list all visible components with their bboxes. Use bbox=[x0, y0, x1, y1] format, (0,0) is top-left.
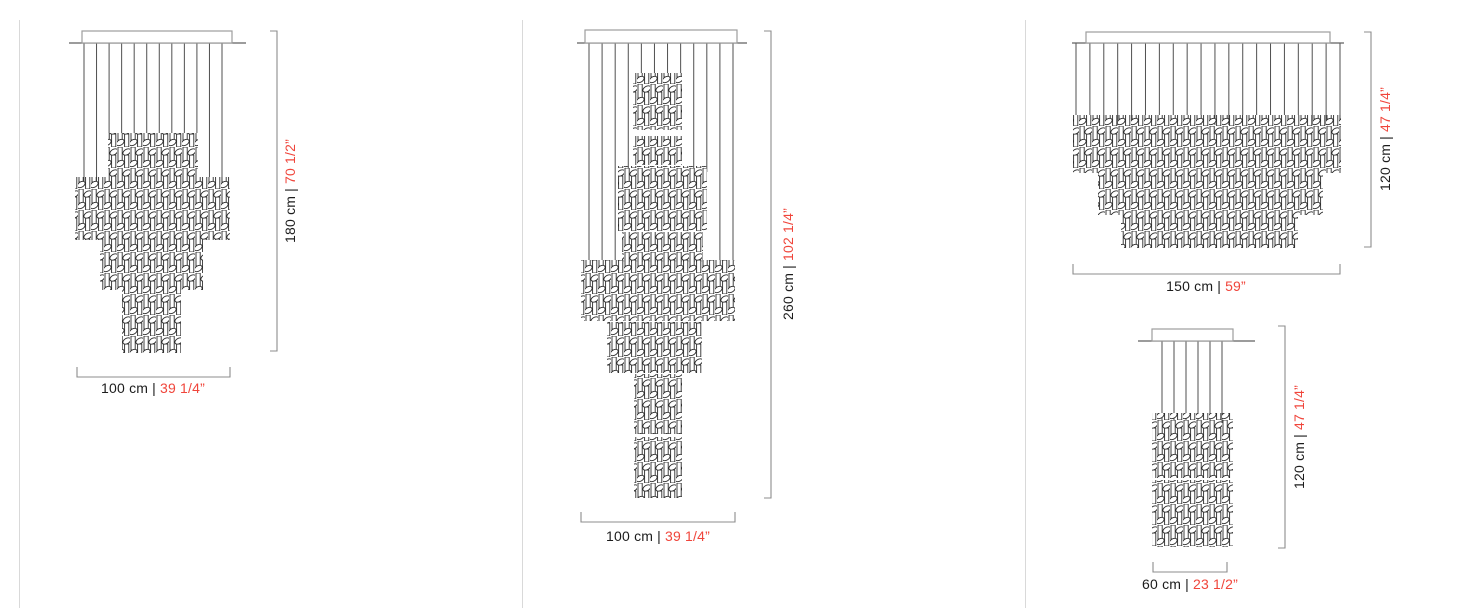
height-label-cm: 260 cm bbox=[780, 273, 796, 320]
diagram-chandelier-60x120: 60 cm|23 1/2” 120 cm|47 1/4” bbox=[1138, 326, 1307, 592]
height-dimension-label: 120 cm|47 1/4” bbox=[1291, 385, 1307, 489]
chandelier-drawing bbox=[69, 31, 277, 377]
diagram-chandelier-100x180: 100 cm|39 1/4” 180 cm|70 1/2” bbox=[69, 31, 298, 396]
width-label-cm: 150 cm bbox=[1166, 278, 1213, 294]
dimension-separator: | bbox=[282, 188, 298, 192]
chandelier-drawing bbox=[1138, 326, 1285, 572]
width-label-inches: 59” bbox=[1225, 278, 1246, 294]
height-dimension-bracket bbox=[1364, 32, 1371, 247]
dimension-separator: | bbox=[1291, 434, 1307, 438]
crystal-cluster-tier bbox=[122, 290, 181, 353]
crystal-cluster-tier bbox=[100, 240, 203, 290]
width-label-cm: 100 cm bbox=[606, 528, 653, 544]
dimension-separator: | bbox=[657, 528, 661, 544]
width-dimension-bracket bbox=[1073, 264, 1340, 274]
width-dimension-bracket bbox=[581, 512, 735, 522]
ceiling-canopy bbox=[1086, 32, 1330, 43]
dimension-separator: | bbox=[1217, 278, 1221, 294]
crystal-cluster-tier bbox=[108, 133, 198, 177]
height-dimension-label: 260 cm|102 1/4” bbox=[780, 208, 796, 320]
width-label-cm: 60 cm bbox=[1142, 576, 1181, 592]
crystal-cluster-tier bbox=[1073, 115, 1341, 173]
ceiling-canopy bbox=[585, 30, 737, 43]
crystal-cluster-tier bbox=[634, 437, 682, 498]
width-label-cm: 100 cm bbox=[101, 380, 148, 396]
chandelier-drawing bbox=[577, 30, 771, 522]
width-label-inches: 23 1/2” bbox=[1193, 576, 1238, 592]
height-label-cm: 120 cm bbox=[1377, 144, 1393, 191]
height-label-cm: 180 cm bbox=[282, 196, 298, 243]
crystal-cluster-tier bbox=[1098, 173, 1323, 215]
height-dimension-label: 120 cm|47 1/4” bbox=[1377, 87, 1393, 191]
crystal-cluster-tier bbox=[1152, 480, 1233, 547]
width-dimension-label: 60 cm|23 1/2” bbox=[1142, 576, 1238, 592]
height-dimension-bracket bbox=[270, 31, 277, 351]
dimension-separator: | bbox=[1377, 136, 1393, 140]
ceiling-canopy bbox=[1152, 329, 1233, 341]
width-dimension-bracket bbox=[1153, 562, 1227, 572]
crystal-cluster-tier bbox=[581, 260, 735, 321]
diagram-chandelier-150x120: 150 cm|59” 120 cm|47 1/4” bbox=[1072, 32, 1393, 294]
diagram-chandelier-100x260: 100 cm|39 1/4” 260 cm|102 1/4” bbox=[577, 30, 796, 544]
width-dimension-label: 150 cm|59” bbox=[1166, 278, 1246, 294]
ceiling-canopy bbox=[82, 31, 232, 43]
height-dimension-bracket bbox=[764, 31, 771, 498]
width-dimension-label: 100 cm|39 1/4” bbox=[101, 380, 205, 396]
crystal-cluster-tier bbox=[634, 374, 682, 434]
crystal-cluster-tier bbox=[618, 166, 707, 231]
crystal-cluster-tier bbox=[607, 322, 702, 373]
height-label-inches: 102 1/4” bbox=[780, 208, 796, 261]
dimension-separator: | bbox=[780, 265, 796, 269]
crystal-cluster-tier bbox=[622, 232, 703, 262]
height-label-inches: 47 1/4” bbox=[1291, 385, 1307, 430]
crystal-cluster-tier bbox=[1152, 413, 1233, 478]
height-dimension-bracket bbox=[1278, 326, 1285, 548]
width-label-inches: 39 1/4” bbox=[160, 380, 205, 396]
width-dimension-bracket bbox=[77, 367, 230, 377]
crystal-cluster-tier bbox=[75, 177, 230, 240]
width-dimension-label: 100 cm|39 1/4” bbox=[606, 528, 710, 544]
width-label-inches: 39 1/4” bbox=[665, 528, 710, 544]
crystal-cluster-tier bbox=[633, 73, 682, 130]
dimension-separator: | bbox=[152, 380, 156, 396]
product-dimension-diagrams: 100 cm|39 1/4” 180 cm|70 1/2” 100 cm|39 … bbox=[0, 0, 1468, 613]
height-label-inches: 47 1/4” bbox=[1377, 87, 1393, 132]
chandelier-drawing bbox=[1072, 32, 1371, 274]
dimension-separator: | bbox=[1185, 576, 1189, 592]
height-label-cm: 120 cm bbox=[1291, 442, 1307, 489]
crystal-cluster-tier bbox=[1121, 215, 1298, 248]
height-label-inches: 70 1/2” bbox=[282, 139, 298, 184]
height-dimension-label: 180 cm|70 1/2” bbox=[282, 139, 298, 243]
crystal-cluster-tier bbox=[633, 136, 682, 165]
